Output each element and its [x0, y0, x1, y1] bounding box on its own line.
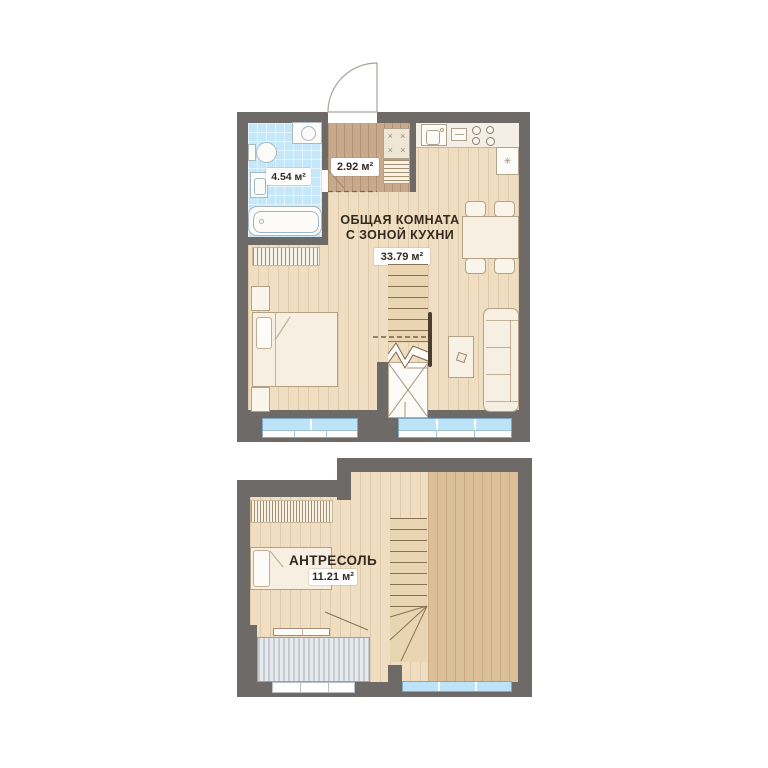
- living-room-title: ОБЩАЯ КОМНАТА С ЗОНОЙ КУХНИ: [300, 213, 500, 243]
- entrance-door-opening: [328, 112, 377, 123]
- mezzanine-stair-winder: [390, 606, 427, 662]
- living-room-title-line2: С ЗОНОЙ КУХНИ: [300, 228, 500, 243]
- mezzanine-floor-plan: АНТРЕСОЛЬ 11.21 м²: [237, 455, 532, 697]
- closet-x-icon: ×: [388, 132, 393, 141]
- wall-stair-bottom-stub: [388, 665, 402, 697]
- stove-burner-icon: [472, 137, 480, 145]
- mezzanine-railing: [273, 628, 330, 636]
- understair-landing: [388, 362, 428, 418]
- washing-machine-drum-icon: [301, 126, 316, 141]
- mezzanine-area-text: 11.21 м²: [312, 571, 354, 583]
- hall-closet: × × × ×: [383, 128, 410, 159]
- wall-understair-stub: [377, 362, 388, 424]
- bed-pillow: [256, 317, 272, 349]
- dining-chair: [494, 258, 515, 274]
- wardrobe: [252, 247, 320, 266]
- frame-divider: [300, 683, 301, 692]
- washing-machine: [292, 122, 322, 144]
- void-over-living-room-floor: [428, 472, 518, 682]
- window-frame: [399, 430, 511, 437]
- kitchen-sink: [421, 124, 447, 146]
- kitchen-sink-basin: [426, 130, 440, 145]
- window-frame: [263, 430, 357, 437]
- frame-divider: [474, 431, 475, 437]
- stair-handrail: [428, 312, 432, 367]
- bed-headboard-line: [275, 313, 276, 386]
- sink-basin: [254, 178, 266, 195]
- window-divider: [475, 682, 477, 691]
- toilet-tank: [248, 144, 256, 161]
- wall-top-left: [237, 480, 350, 497]
- fridge-snowflake-icon: ✳: [504, 157, 512, 166]
- hallway-area-text: 2.92 м²: [337, 161, 373, 173]
- floorplan-page: { "page": {"description": "Two-level apa…: [0, 0, 768, 768]
- frame-divider: [328, 683, 329, 692]
- nightstand: [251, 286, 270, 311]
- entrance-arrow-icon: [351, 85, 359, 99]
- living-room-area-text: 33.79 м²: [381, 251, 423, 263]
- stove: [469, 124, 500, 147]
- lower-left-window-frames: [272, 682, 355, 693]
- wall-top-right: [337, 458, 532, 472]
- living-room-area-label: 33.79 м²: [374, 248, 430, 265]
- coffee-table: [448, 336, 474, 378]
- toilet-bowl: [256, 142, 277, 163]
- wall-right: [518, 458, 532, 697]
- mezzanine-title: АНТРЕСОЛЬ: [263, 553, 403, 568]
- kitchen-faucet: [440, 128, 444, 132]
- nightstand: [251, 387, 270, 412]
- living-room-title-line1: ОБЩАЯ КОМНАТА: [300, 213, 500, 228]
- sofa-seat-divider: [486, 374, 511, 375]
- stove-burner-icon: [486, 126, 494, 134]
- window: [398, 418, 512, 438]
- frame-divider: [326, 431, 327, 437]
- mezzanine-area-label: 11.21 м²: [309, 569, 357, 585]
- bathtub-drain: [259, 219, 264, 224]
- bathroom-door-opening: [322, 170, 328, 192]
- window: [262, 418, 358, 438]
- hall-shelf: [383, 159, 410, 184]
- sofa-armrest-line: [486, 401, 518, 402]
- cutting-board: [451, 128, 467, 141]
- hallway-area-label: 2.92 м²: [331, 158, 379, 176]
- upper-floor-plan: 4.54 м² × × × × 2.92 м² ✳ ОБЩАЯ КОМНАТА …: [237, 112, 530, 442]
- bathroom-area-label: 4.54 м²: [266, 168, 311, 185]
- cutting-board-line: [455, 134, 464, 135]
- mezzanine-wardrobe: [250, 500, 333, 523]
- void-striped-block: [257, 637, 370, 682]
- window-divider: [438, 682, 440, 691]
- wall-left-bottom-pad: [237, 625, 257, 697]
- railing-divider: [302, 629, 303, 635]
- sofa-seat-divider: [486, 347, 511, 348]
- sofa: [483, 308, 519, 412]
- frame-divider: [294, 431, 295, 437]
- closet-x-icon: ×: [400, 132, 405, 141]
- staircase-flight: [388, 264, 428, 343]
- frame-divider: [436, 431, 437, 437]
- double-bed: [252, 312, 338, 387]
- fridge: ✳: [496, 147, 519, 175]
- stove-burner-icon: [472, 126, 481, 135]
- stove-burner-icon: [486, 137, 495, 146]
- sofa-backrest-line: [510, 320, 511, 402]
- window: [402, 681, 512, 692]
- closet-x-icon: ×: [400, 146, 405, 155]
- entrance-arrow-head-icon: [347, 98, 363, 109]
- closet-x-icon: ×: [388, 146, 393, 155]
- dining-chair: [465, 258, 486, 274]
- table-decor-icon: [456, 352, 467, 363]
- bathroom-area-text: 4.54 м²: [271, 171, 306, 183]
- mezzanine-title-text: АНТРЕСОЛЬ: [289, 553, 377, 568]
- sofa-armrest-line: [486, 320, 518, 321]
